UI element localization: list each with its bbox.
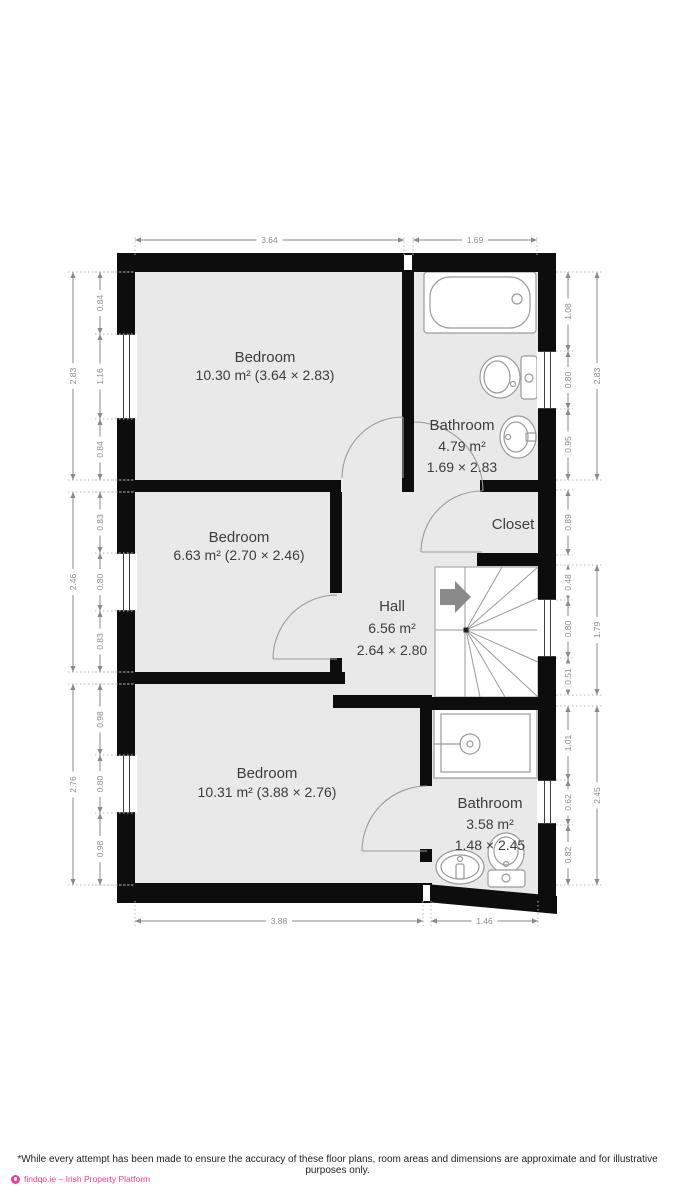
dimension-top-1: 1.69 [413, 235, 537, 256]
room-label-closet: Closet [492, 516, 535, 533]
brand-logo-icon [11, 1175, 20, 1184]
window-bedroom-top-left [115, 334, 137, 419]
dimension-label: 0.89 [563, 514, 573, 531]
sink-top [500, 416, 536, 458]
room-area-hall: 6.56 m² [368, 620, 416, 636]
wall-bedroom-bathroom-top [402, 253, 414, 492]
window-bathroom-bottom-right [537, 780, 558, 824]
dimension-right_inner-1: 0.80 [556, 351, 574, 409]
disclaimer-text: *While every attempt has been made to en… [0, 1154, 675, 1176]
room-label-hall: Hall [379, 598, 405, 615]
dimension-label: 0.83 [95, 514, 105, 531]
dimension-right_inner-0: 1.08 [556, 272, 574, 351]
dimension-right_inner-7: 1.01 [556, 706, 574, 780]
dimension-right_inner-9: 0.82 [556, 825, 574, 885]
room-label-bathroom-top: Bathroom [429, 417, 494, 434]
dimension-label: 2.76 [68, 776, 78, 793]
dimension-label: 0.80 [563, 620, 573, 637]
dimension-right_inner-4: 0.48 [556, 565, 574, 600]
dimension-label: 0.84 [95, 294, 105, 311]
room-area-bedroom-bottom: 10.31 m² (3.88 × 2.76) [198, 784, 337, 800]
dimension-label: 0.84 [95, 441, 105, 458]
window-bedroom-middle-left [115, 553, 137, 611]
dimension-label: 3.88 [271, 916, 288, 926]
dimension-label: 2.46 [68, 573, 78, 590]
floor-plan-svg: Bedroom 10.30 m² (3.64 × 2.83) Bathroom … [0, 0, 675, 1200]
wall-seam-bottom [423, 885, 430, 901]
dimension-label: 1.79 [592, 621, 602, 638]
sink-bottom [436, 850, 484, 884]
shower [434, 708, 537, 778]
dimension-label: 1.08 [563, 303, 573, 320]
room-area-bedroom-top: 10.30 m² (3.64 × 2.83) [196, 367, 335, 383]
dimension-label: 0.82 [563, 846, 573, 863]
dimension-label: 0.98 [95, 840, 105, 857]
room-area-bedroom-middle: 6.63 m² (2.70 × 2.46) [173, 547, 304, 563]
dimension-label: 2.83 [592, 367, 602, 384]
dimension-label: 1.16 [95, 368, 105, 385]
bathtub [424, 272, 536, 333]
dimension-right_inner-6: 0.51 [556, 658, 574, 695]
dimension-label: 0.98 [95, 711, 105, 728]
wall-bedroom-middle-bottom [117, 672, 345, 684]
wall-exterior-top [117, 253, 556, 272]
dimension-label: 0.80 [563, 371, 573, 388]
wall-bedroom-top-bottom [117, 480, 341, 492]
dimension-right_inner-3: 0.89 [556, 490, 574, 555]
window-stairs-right [537, 599, 558, 657]
dimension-label: 2.45 [592, 787, 602, 804]
dimension-top-0: 3.64 [135, 235, 404, 256]
dimension-label: 1.69 [467, 235, 484, 245]
room-size-bathroom-bottom: 1.48 × 2.45 [455, 837, 526, 853]
stair-hub-dot [464, 628, 469, 633]
dimension-label: 0.80 [95, 573, 105, 590]
room-area-bathroom-bottom: 3.58 m² [466, 816, 514, 832]
brand-text: findqo.ie – Irish Property Platform [24, 1174, 150, 1184]
wall-bedroom-middle-right [330, 492, 342, 593]
toilet-top [480, 356, 537, 399]
dimension-label: 1.01 [563, 734, 573, 751]
wall-closet-top [480, 480, 538, 492]
wall-closet-bottom [477, 553, 538, 566]
wall-hall-bottom [333, 695, 432, 708]
dimension-label: 0.51 [563, 668, 573, 685]
room-size-bathroom-top: 1.69 × 2.83 [427, 459, 498, 475]
dimension-label: 0.62 [563, 794, 573, 811]
dimension-label: 0.83 [95, 633, 105, 650]
dimension-right_inner-2: 0.95 [556, 409, 574, 480]
room-size-hall: 2.64 × 2.80 [357, 642, 428, 658]
room-label-bedroom-bottom: Bedroom [237, 765, 298, 782]
dimension-right_inner-5: 0.80 [556, 600, 574, 658]
room-label-bedroom-top: Bedroom [235, 349, 296, 366]
dimension-bottom-0: 3.88 [135, 901, 423, 927]
window-bedroom-bottom-left [115, 755, 137, 813]
room-label-bedroom-middle: Bedroom [209, 529, 270, 546]
window-bathroom-top-right [537, 351, 558, 409]
dimension-label: 0.95 [563, 436, 573, 453]
dimension-label: 0.48 [563, 574, 573, 591]
stair-box [435, 567, 538, 697]
brand-credit: findqo.ie – Irish Property Platform [11, 1174, 150, 1184]
wall-stairs-bottom [420, 697, 538, 710]
floor-plan-page: Bedroom 10.30 m² (3.64 × 2.83) Bathroom … [0, 0, 675, 1200]
dimension-right_inner-8: 0.62 [556, 780, 574, 825]
wall-seam-top [404, 255, 412, 270]
room-label-bathroom-bottom: Bathroom [457, 795, 522, 812]
wall-exterior-bottom-left [117, 883, 432, 903]
dimension-label: 1.46 [476, 916, 493, 926]
staircase [435, 567, 538, 697]
room-area-bathroom-top: 4.79 m² [438, 438, 486, 454]
dimension-label: 2.83 [68, 367, 78, 384]
dimension-label: 0.80 [95, 775, 105, 792]
dimension-label: 3.64 [261, 235, 278, 245]
